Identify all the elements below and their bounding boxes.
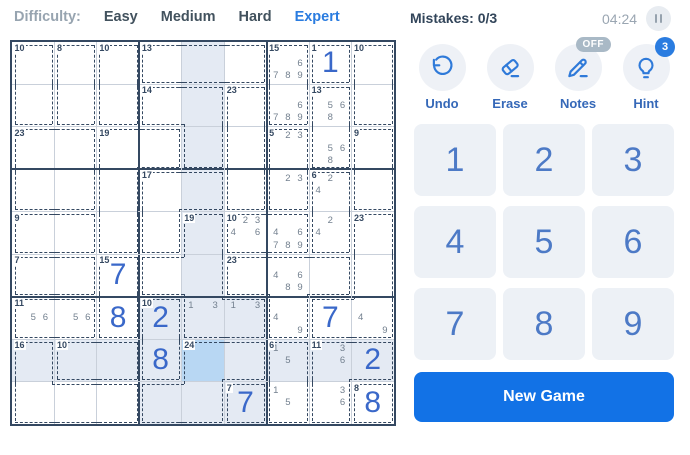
cell-r2c9[interactable]	[352, 84, 394, 126]
cell-r2c4[interactable]	[139, 84, 181, 126]
cell-r3c4[interactable]	[139, 127, 181, 169]
notes-label: Notes	[560, 96, 596, 111]
notes-button[interactable]: OFF Notes	[548, 44, 608, 111]
undo-label: Undo	[425, 96, 458, 111]
cell-r8c2[interactable]	[54, 339, 96, 381]
cell-r3c9[interactable]	[352, 127, 394, 169]
cell-r3c3[interactable]	[97, 127, 139, 169]
cell-r7c1[interactable]	[12, 297, 54, 339]
cell-r5c2[interactable]	[54, 212, 96, 254]
cell-r3c6[interactable]	[224, 127, 266, 169]
cell-r7c9[interactable]	[352, 297, 394, 339]
cell-r7c4[interactable]	[139, 297, 181, 339]
cell-r9c2[interactable]	[54, 382, 96, 424]
cell-r8c5[interactable]	[182, 339, 224, 381]
cell-r6c6[interactable]	[224, 254, 266, 296]
numpad-1[interactable]: 1	[414, 124, 496, 196]
cell-r1c7[interactable]	[267, 42, 309, 84]
numpad-6[interactable]: 6	[592, 206, 674, 278]
erase-button[interactable]: Erase	[480, 44, 540, 111]
cell-r6c7[interactable]	[267, 254, 309, 296]
cell-r7c2[interactable]	[54, 297, 96, 339]
cell-r3c8[interactable]	[309, 127, 351, 169]
cell-r5c7[interactable]	[267, 212, 309, 254]
mistakes-counter: Mistakes: 0/3	[410, 10, 497, 26]
cell-r2c7[interactable]	[267, 84, 309, 126]
difficulty-label: Difficulty:	[14, 9, 81, 25]
difficulty-expert[interactable]: Expert	[295, 9, 340, 25]
cell-r7c6[interactable]	[224, 297, 266, 339]
cell-r4c9[interactable]	[352, 169, 394, 211]
difficulty-medium[interactable]: Medium	[161, 9, 216, 25]
notes-off-badge: OFF	[576, 37, 612, 52]
cell-r5c3[interactable]	[97, 212, 139, 254]
cell-r7c3[interactable]	[97, 297, 139, 339]
cell-r8c4[interactable]	[139, 339, 181, 381]
numpad-4[interactable]: 4	[414, 206, 496, 278]
hint-count-badge: 3	[655, 37, 675, 57]
cell-r6c3[interactable]	[97, 254, 139, 296]
eraser-icon	[487, 44, 534, 91]
cell-r5c6[interactable]	[224, 212, 266, 254]
numpad-2[interactable]: 2	[503, 124, 585, 196]
cell-r7c8[interactable]	[309, 297, 351, 339]
cell-r5c1[interactable]	[12, 212, 54, 254]
cell-r1c3[interactable]	[97, 42, 139, 84]
erase-label: Erase	[492, 96, 527, 111]
cell-r3c2[interactable]	[54, 127, 96, 169]
cell-r3c5[interactable]	[182, 127, 224, 169]
cell-r2c8[interactable]	[309, 84, 351, 126]
cell-r5c5[interactable]	[182, 212, 224, 254]
cell-r6c4[interactable]	[139, 254, 181, 296]
cell-r4c4[interactable]	[139, 169, 181, 211]
numpad: 123456789	[414, 124, 674, 360]
cell-r2c1[interactable]	[12, 84, 54, 126]
killer-sudoku-app: { "header": { "difficulty_label": "Diffi…	[0, 0, 690, 455]
undo-button[interactable]: Undo	[412, 44, 472, 111]
numpad-5[interactable]: 5	[503, 206, 585, 278]
cell-r1c8[interactable]	[309, 42, 351, 84]
cell-r9c8[interactable]	[309, 382, 351, 424]
cell-r8c6[interactable]	[224, 339, 266, 381]
cell-r3c7[interactable]	[267, 127, 309, 169]
toolbar: Undo Erase OFF Notes 3 Hint	[412, 44, 676, 111]
cell-r4c2[interactable]	[54, 169, 96, 211]
cell-r8c3[interactable]	[97, 339, 139, 381]
cell-r4c7[interactable]	[267, 169, 309, 211]
cell-r6c2[interactable]	[54, 254, 96, 296]
difficulty-hard[interactable]: Hard	[239, 9, 272, 25]
cell-r3c1[interactable]	[12, 127, 54, 169]
cell-r9c3[interactable]	[97, 382, 139, 424]
timer: 04:24	[602, 11, 637, 27]
cell-r6c9[interactable]	[352, 254, 394, 296]
numpad-3[interactable]: 3	[592, 124, 674, 196]
cell-r8c1[interactable]	[12, 339, 54, 381]
pause-button[interactable]	[646, 6, 671, 31]
cell-r6c1[interactable]	[12, 254, 54, 296]
cell-r9c6[interactable]	[224, 382, 266, 424]
cell-r1c1[interactable]	[12, 42, 54, 84]
pause-icon	[655, 14, 663, 23]
cell-r2c2[interactable]	[54, 84, 96, 126]
cell-r2c3[interactable]	[97, 84, 139, 126]
cell-r9c5[interactable]	[182, 382, 224, 424]
cell-r2c6[interactable]	[224, 84, 266, 126]
cell-r4c1[interactable]	[12, 169, 54, 211]
difficulty-easy[interactable]: Easy	[104, 9, 138, 25]
cell-r6c5[interactable]	[182, 254, 224, 296]
cell-r9c1[interactable]	[12, 382, 54, 424]
new-game-button[interactable]: New Game	[414, 372, 674, 422]
cell-r5c4[interactable]	[139, 212, 181, 254]
cell-r6c8[interactable]	[309, 254, 351, 296]
cell-r7c5[interactable]	[182, 297, 224, 339]
undo-icon	[419, 44, 466, 91]
difficulty-bar: Difficulty: Easy Medium Hard Expert	[14, 9, 340, 25]
cell-r4c8[interactable]	[309, 169, 351, 211]
cell-r1c5[interactable]	[182, 42, 224, 84]
cell-r4c6[interactable]	[224, 169, 266, 211]
cell-r1c4[interactable]	[139, 42, 181, 84]
numpad-8[interactable]: 8	[503, 288, 585, 360]
board: 1081013151101423132319591769191023715231…	[10, 40, 396, 426]
cell-r9c9[interactable]	[352, 382, 394, 424]
cell-r2c5[interactable]	[182, 84, 224, 126]
hint-label: Hint	[633, 96, 658, 111]
cell-r5c8[interactable]	[309, 212, 351, 254]
cell-r7c7[interactable]	[267, 297, 309, 339]
cell-r8c7[interactable]	[267, 339, 309, 381]
cell-r4c3[interactable]	[97, 169, 139, 211]
cell-r5c9[interactable]	[352, 212, 394, 254]
cell-r8c8[interactable]	[309, 339, 351, 381]
hint-button[interactable]: 3 Hint	[616, 44, 676, 111]
cell-r4c5[interactable]	[182, 169, 224, 211]
numpad-9[interactable]: 9	[592, 288, 674, 360]
cell-r1c6[interactable]	[224, 42, 266, 84]
cell-r9c7[interactable]	[267, 382, 309, 424]
numpad-7[interactable]: 7	[414, 288, 496, 360]
cell-r8c9[interactable]	[352, 339, 394, 381]
cell-r1c2[interactable]	[54, 42, 96, 84]
cell-r9c4[interactable]	[139, 382, 181, 424]
cell-r1c9[interactable]	[352, 42, 394, 84]
